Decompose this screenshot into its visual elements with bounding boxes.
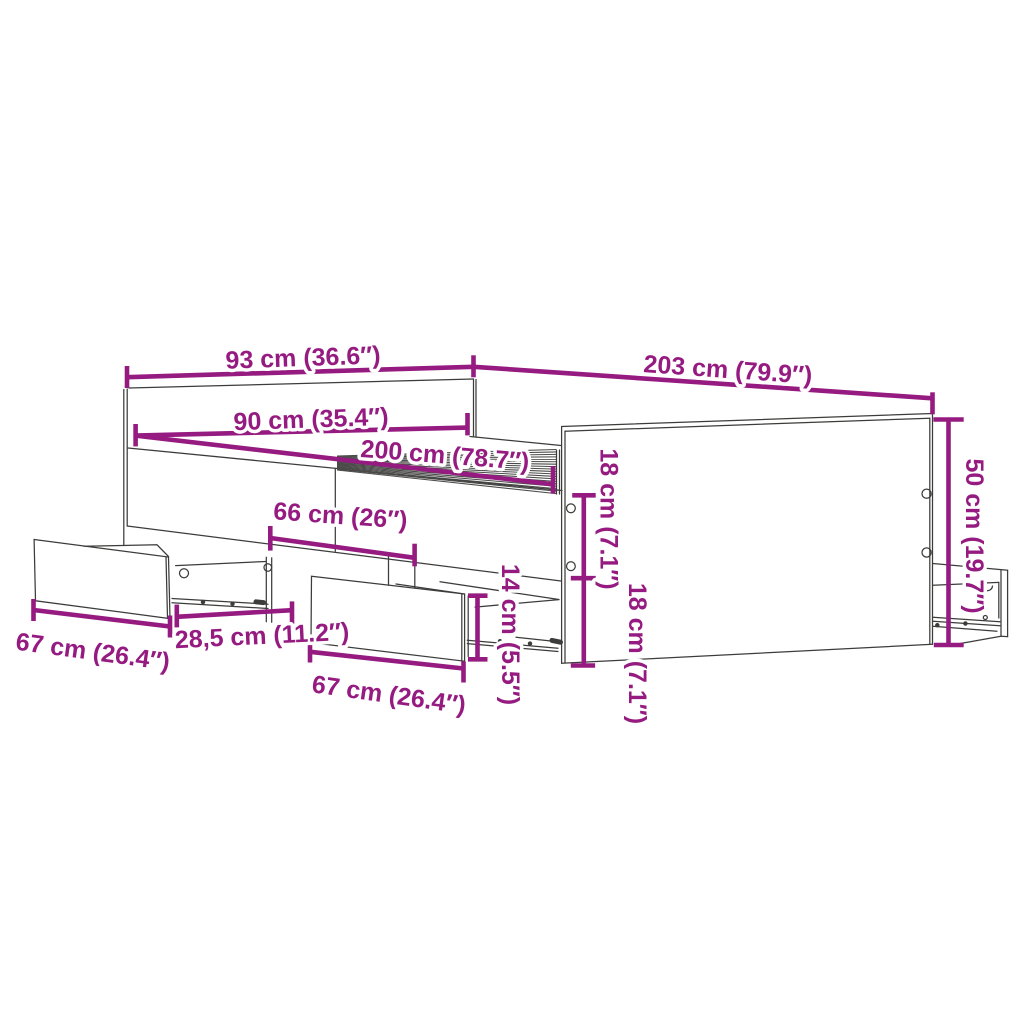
svg-text:93 cm (36.6″): 93 cm (36.6″) bbox=[225, 341, 381, 374]
svg-text:50 cm (19.7″): 50 cm (19.7″) bbox=[960, 458, 988, 613]
svg-text:14 cm (5.5″): 14 cm (5.5″) bbox=[496, 564, 524, 705]
svg-text:18 cm (7.1″): 18 cm (7.1″) bbox=[595, 448, 623, 589]
svg-text:90 cm (35.4″): 90 cm (35.4″) bbox=[233, 403, 389, 436]
svg-text:18 cm (7.1″): 18 cm (7.1″) bbox=[623, 583, 651, 724]
